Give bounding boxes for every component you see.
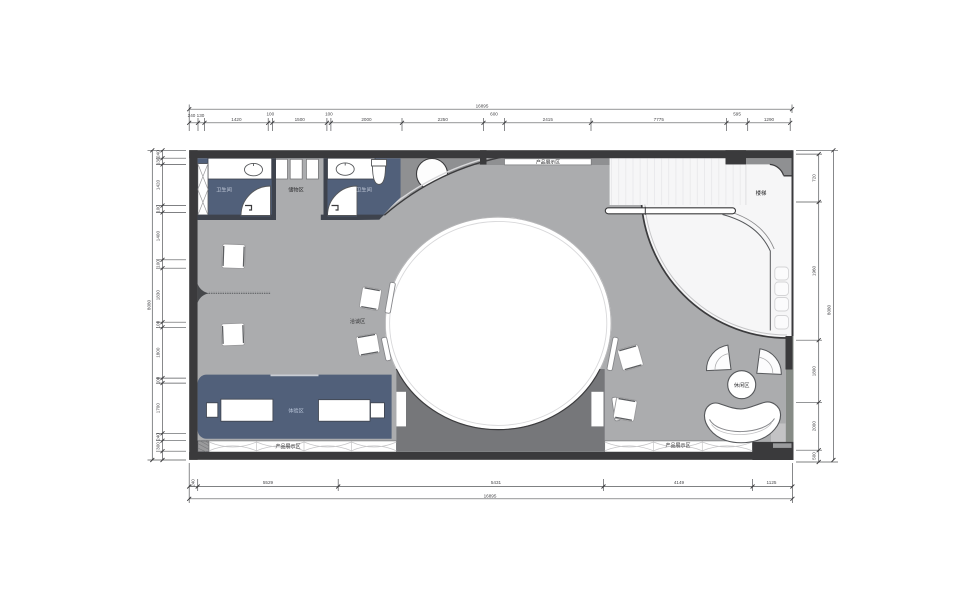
- svg-text:500: 500: [812, 452, 817, 460]
- svg-text:2250: 2250: [438, 117, 449, 122]
- svg-text:100: 100: [156, 205, 161, 213]
- svg-text:8080: 8080: [826, 304, 831, 315]
- svg-text:4149: 4149: [674, 480, 685, 485]
- svg-text:8080: 8080: [147, 299, 152, 310]
- svg-text:产品展示区: 产品展示区: [665, 442, 690, 449]
- svg-text:休闲区: 休闲区: [734, 381, 750, 389]
- svg-text:16895: 16895: [476, 104, 489, 109]
- svg-text:储物区: 储物区: [288, 186, 304, 194]
- svg-text:130: 130: [197, 113, 205, 118]
- svg-text:1700: 1700: [156, 403, 161, 414]
- svg-text:100: 100: [156, 320, 161, 328]
- svg-text:楼梯: 楼梯: [756, 189, 767, 197]
- svg-text:1500: 1500: [295, 117, 306, 122]
- svg-text:595: 595: [733, 112, 741, 117]
- svg-text:16895: 16895: [484, 494, 497, 499]
- svg-text:1400: 1400: [156, 231, 161, 242]
- svg-text:1800: 1800: [156, 347, 161, 358]
- svg-text:1290: 1290: [764, 117, 775, 122]
- svg-text:720: 720: [812, 174, 817, 182]
- svg-text:5529: 5529: [263, 480, 274, 485]
- svg-text:130: 130: [156, 157, 161, 165]
- svg-text:100: 100: [156, 376, 161, 384]
- svg-text:240: 240: [188, 113, 196, 118]
- svg-text:1960: 1960: [812, 265, 817, 276]
- svg-text:240: 240: [191, 479, 196, 487]
- svg-text:2000: 2000: [812, 421, 817, 432]
- svg-text:卫生间: 卫生间: [356, 186, 372, 194]
- svg-text:2000: 2000: [361, 117, 372, 122]
- svg-text:产品展示区: 产品展示区: [536, 159, 560, 166]
- svg-text:300: 300: [156, 442, 161, 450]
- svg-text:2415: 2415: [543, 117, 554, 122]
- svg-text:1830: 1830: [156, 290, 161, 301]
- svg-text:1800: 1800: [812, 366, 817, 377]
- svg-text:5431: 5431: [491, 480, 502, 485]
- svg-text:100: 100: [156, 260, 161, 268]
- svg-text:100: 100: [266, 112, 274, 117]
- svg-text:240: 240: [156, 433, 161, 441]
- svg-text:卫生间: 卫生间: [216, 186, 232, 194]
- svg-text:体验区: 体验区: [288, 407, 304, 415]
- svg-text:洽谈区: 洽谈区: [350, 317, 366, 325]
- svg-text:100: 100: [325, 112, 333, 117]
- svg-text:600: 600: [490, 112, 498, 117]
- svg-text:7775: 7775: [654, 117, 665, 122]
- svg-text:产品展示区: 产品展示区: [275, 443, 300, 450]
- svg-text:1420: 1420: [156, 179, 161, 190]
- svg-text:1420: 1420: [231, 117, 242, 122]
- svg-text:240: 240: [156, 150, 161, 158]
- svg-text:1125: 1125: [767, 480, 777, 485]
